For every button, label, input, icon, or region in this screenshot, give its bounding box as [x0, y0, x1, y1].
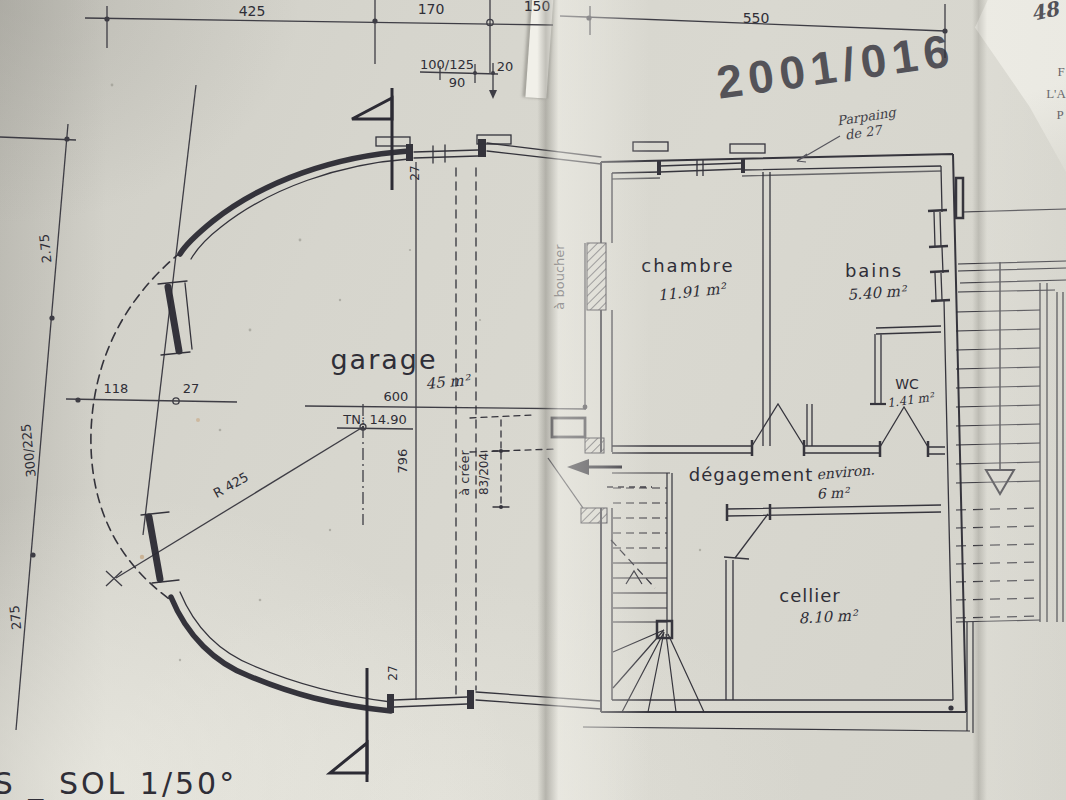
note-environ-label: environ. — [816, 462, 875, 483]
room-degagement-label: dégagement — [689, 464, 814, 485]
area-garage-label: 45 m² — [425, 371, 472, 393]
section-marker-bottom — [330, 668, 367, 782]
sheet-title-label: US _ SOL 1/50° — [0, 766, 237, 800]
entry-step — [552, 418, 585, 437]
door-swing-cellier — [735, 514, 768, 558]
note-48-blue-label: 48 — [1028, 0, 1062, 26]
opening-to-block-hatch — [587, 243, 606, 310]
area-wc-label: 1.41 m² — [886, 390, 936, 411]
margin-frag-2-label: L'A — [1046, 86, 1066, 101]
area-degagement-label: 6 m² — [816, 484, 851, 502]
door-swing-chambre — [752, 404, 804, 446]
room-garage-label: garage — [330, 344, 437, 375]
wall-to-create-dashed — [456, 168, 476, 694]
margin-frag-1-label: F — [1057, 64, 1064, 79]
dim-top-425-label: 425 — [239, 3, 266, 19]
floor-plan-drawing: 425170150550100/12520902.75300/225275118… — [0, 0, 1066, 800]
dim-left-2-75-label: 2.75 — [37, 233, 55, 263]
level-tn-label: TN: 14.90 — [342, 412, 406, 427]
door-swing-wc — [880, 407, 928, 447]
area-cellier-label: 8.10 m² — [798, 606, 859, 627]
room-wc-label: WC — [895, 376, 919, 392]
dim-garage-27-label: 27 — [183, 381, 200, 396]
margin-frag-3-label: P — [1056, 107, 1063, 122]
dim-wall27-bot-label: 27 — [386, 665, 400, 680]
interior-staircase — [611, 473, 704, 712]
dim-83-204-label: 83/204 — [477, 453, 491, 495]
dim-garage-600-label: 600 — [384, 389, 409, 404]
stamp-number-label: 2001/016 — [713, 24, 958, 109]
interior-partitions — [548, 172, 945, 700]
dim-open-20-label: 20 — [497, 59, 514, 74]
room-bains-label: bains — [845, 260, 903, 281]
note-a-boucher-label: à boucher — [552, 244, 567, 310]
area-bains-label: 5.40 m² — [847, 282, 908, 304]
dim-garage-796-label: 796 — [395, 449, 410, 474]
dim-top-170-label: 170 — [418, 1, 445, 17]
room-cellier-label: cellier — [779, 585, 840, 606]
dim-top-550-label: 550 — [743, 10, 770, 26]
dim-left-300-225-label: 300/225 — [18, 423, 39, 478]
exterior-sill — [956, 178, 963, 218]
radius-r425-label: R 425 — [211, 469, 251, 501]
dim-open-100-125-label: 100/125 — [420, 57, 474, 72]
note-a-creer-label: à créer — [457, 450, 472, 496]
dim-left-275-label: 275 — [7, 604, 25, 630]
area-chambre-label: 11.91 m² — [657, 279, 728, 304]
dim-wall27-top-label: 27 — [408, 165, 422, 180]
dim-garage-118-label: 118 — [104, 381, 129, 396]
scanned-floor-plan-photo: 425170150550100/12520902.75300/225275118… — [0, 0, 1066, 800]
section-marker-top — [352, 88, 392, 190]
dim-top-150-label: 150 — [524, 0, 551, 14]
dim-open-90-label: 90 — [449, 75, 466, 90]
room-chambre-label: chambre — [641, 255, 734, 276]
